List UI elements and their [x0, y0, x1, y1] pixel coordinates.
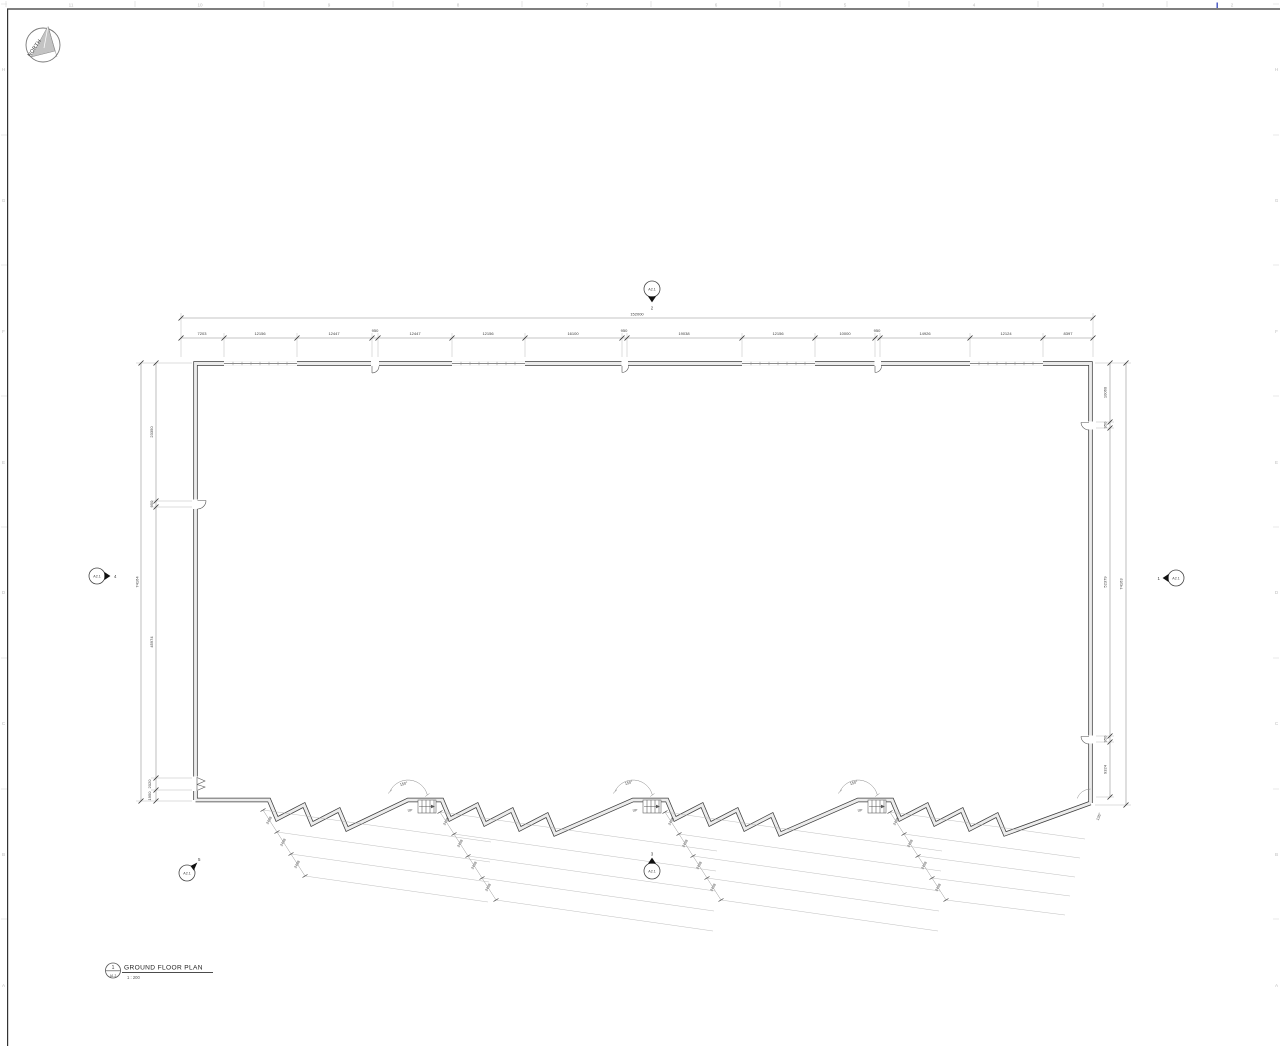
dim-left-overall: 74164: [135, 576, 140, 588]
up-label: UP: [633, 809, 638, 813]
section-sheet-ref: A2.1: [1172, 577, 1179, 581]
section-sheet-ref: A2.1: [648, 288, 655, 292]
dim: 52379: [1103, 576, 1108, 588]
dim: 950: [1103, 421, 1108, 428]
door-right-2: [1081, 736, 1093, 745]
door-top-3: [875, 361, 882, 373]
door-left: [193, 500, 206, 510]
view-scale: 1 : 200: [127, 975, 140, 980]
wall-outline: [196, 364, 1091, 835]
grid-letter: D: [1275, 590, 1279, 595]
sawtooth-dim: 2438: [484, 883, 491, 892]
dim: 950: [149, 500, 154, 507]
section-sheet-ref: A2.1: [648, 870, 655, 874]
view-title-block[interactable]: 1 A1.2 GROUND FLOOR PLAN 1 : 200: [106, 963, 214, 980]
door-top-1: [371, 361, 379, 373]
section-arrow-icon: [648, 858, 656, 864]
dim: 19038: [678, 331, 690, 336]
grid-letter: G: [1275, 198, 1279, 203]
right-dimension-chain: 74163 10060 950 52379 950 9324: [1095, 361, 1131, 808]
grid-letter: H: [2, 67, 5, 72]
grid-number: 6: [715, 3, 718, 8]
left-dimension-chain: 74164 23350 950 45974 2020 1950: [135, 361, 193, 804]
dim: 12124: [1000, 331, 1012, 336]
door-top-2: [622, 361, 629, 373]
dim: 12156: [482, 331, 494, 336]
notch-angle-label: 150°: [399, 781, 408, 787]
dim: 12156: [772, 331, 784, 336]
grid-letter: G: [2, 198, 6, 203]
view-title: GROUND FLOOR PLAN: [124, 965, 203, 972]
dim: 12156: [254, 331, 266, 336]
sawtooth-dim: 2438: [470, 861, 477, 870]
dim: 10060: [1103, 386, 1108, 398]
sawtooth-dim: 2438: [681, 839, 688, 848]
dim-right-overall: 74163: [1119, 578, 1124, 590]
sawtooth-dim: 2438: [934, 883, 941, 892]
grid-number: 11: [69, 3, 74, 8]
doors: [193, 361, 1093, 791]
grid-letter: B: [1275, 852, 1278, 857]
building-walls: [196, 364, 1091, 835]
sawtooth-dim: 2438: [695, 861, 702, 870]
section-detail-number: 4: [114, 574, 117, 579]
grid-letter: C: [2, 721, 6, 726]
grid-number: 7: [586, 3, 589, 8]
door-right-1: [1081, 422, 1093, 431]
floor-plan-sheet[interactable]: 11 10 9 8 7 6 5 4 3 2 H G F E D C B A H …: [0, 0, 1280, 1046]
sheet-border: [1, 1, 1280, 1046]
dim: 12447: [409, 331, 421, 336]
section-detail-number: 2: [651, 306, 654, 311]
dim: 9324: [1103, 764, 1108, 774]
grid-number: 10: [197, 3, 203, 8]
sheet-revision-tick: [1217, 3, 1218, 9]
dim: 16100: [567, 331, 579, 336]
section-arrow-icon: [1163, 574, 1169, 582]
dim: 8397: [1064, 331, 1074, 336]
double-door-left-bottom: [193, 777, 205, 792]
section-marker-bottom-left[interactable]: A2.1 5: [179, 857, 201, 881]
grid-number: 5: [844, 3, 847, 8]
section-sheet-ref: A2.1: [93, 575, 100, 579]
grid-letter: H: [1275, 67, 1278, 72]
section-detail-number: 3: [651, 852, 654, 857]
north-arrow-icon: NORTH: [26, 26, 60, 62]
grid-letter: B: [2, 852, 5, 857]
section-marker-top[interactable]: A2.1 2: [644, 281, 660, 311]
grid-number: 3: [1102, 3, 1105, 8]
dim-top-overall: 152000: [630, 312, 644, 317]
grid-letter: A: [1275, 983, 1279, 988]
dim: 950: [621, 328, 628, 333]
dim: 7203: [198, 331, 208, 336]
dim: 2020: [147, 779, 152, 789]
dim: 950: [874, 328, 881, 333]
sawtooth-dim: 2438: [906, 839, 913, 848]
grid-letter: F: [1275, 329, 1278, 334]
sawtooth-dimensions: 2438 2438 2438 2438 2438 2438 2438 2438 …: [261, 809, 1086, 932]
up-label: UP: [408, 809, 413, 813]
grid-number: 9: [328, 3, 331, 8]
dim: 10000: [839, 331, 851, 336]
view-sheet-number: A1.2: [110, 974, 117, 978]
dim: 45974: [149, 636, 154, 648]
grid-number: 4: [973, 3, 976, 8]
dim: 12447: [328, 331, 340, 336]
view-detail-number: 1: [112, 965, 115, 971]
grid-letter: E: [2, 460, 5, 465]
wall-core: [196, 364, 1091, 835]
grid-number: 2: [1231, 3, 1234, 8]
section-detail-number: 1: [1158, 576, 1161, 581]
dim: 14926: [919, 331, 931, 336]
corner-angle-label: 135°: [1096, 812, 1103, 821]
dim: 1950: [147, 791, 152, 801]
section-marker-right[interactable]: A2.1 1: [1158, 570, 1184, 586]
sawtooth-dim: 2438: [920, 861, 927, 870]
grid-letter: C: [1275, 721, 1279, 726]
grid-letter: E: [1275, 460, 1278, 465]
grid-letter: D: [2, 590, 6, 595]
up-label: UP: [858, 809, 863, 813]
dim: 950: [1103, 735, 1108, 742]
top-dimension-chain: 152000 7203 12156 12447 950 12447 12156 …: [179, 312, 1096, 358]
notch-angle-label: 150°: [849, 780, 858, 786]
section-marker-bottom-center[interactable]: A2.1 3: [644, 852, 660, 880]
sawtooth-dim: 2438: [709, 883, 716, 892]
section-arrow-icon: [104, 572, 110, 580]
section-marker-left[interactable]: A2.1 4: [89, 568, 117, 584]
section-sheet-ref: A2.1: [183, 872, 190, 876]
notch-angle-label: 150°: [624, 780, 633, 786]
grid-letter: F: [2, 329, 5, 334]
grid-number: 8: [457, 3, 460, 8]
grid-letter: A: [2, 983, 6, 988]
dim: 950: [372, 328, 379, 333]
section-detail-number: 5: [198, 857, 201, 862]
sawtooth-dim: 2438: [456, 839, 463, 848]
dim: 23350: [149, 426, 154, 438]
section-arrow-icon: [648, 296, 656, 302]
